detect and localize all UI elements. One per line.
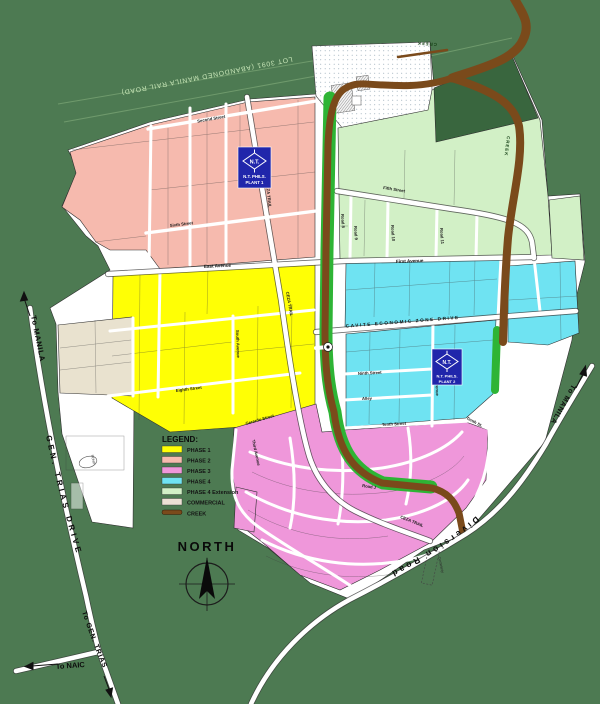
label-alley: Alley [362, 396, 373, 401]
estate-map: LOT 3091 (ABANDONED MANILA RAIL ROAD) [0, 0, 600, 704]
plant-1-name: N.T. PHILS. [243, 174, 266, 179]
plant-2-number: PLANT 2 [439, 379, 456, 384]
region-phase4-east [508, 261, 579, 345]
legend-label-phase4: PHASE 4 [187, 480, 211, 486]
legend-label-commercial: COMMERCIAL [187, 501, 226, 507]
legend-label-phase4ext: PHASE 4 Extension [187, 490, 239, 496]
legend-label-phase3: PHASE 3 [187, 469, 211, 475]
legend-swatch-phase4ext [162, 488, 182, 495]
legend-swatch-phase2 [162, 457, 182, 464]
region-phase1 [112, 261, 315, 432]
legend-swatch-phase1 [162, 446, 182, 453]
legend-label-phase2: PHASE 2 [187, 459, 211, 465]
legend-label-phase1: PHASE 1 [187, 448, 211, 454]
plant-2-name: N.T. PHILS. [436, 374, 457, 379]
map-canvas: LOT 3091 (ABANDONED MANILA RAIL ROAD) [0, 0, 600, 704]
label-road-8: Road 8 [340, 214, 346, 229]
legend-swatch-commercial [162, 499, 182, 506]
region-phase4ext-east [549, 196, 584, 260]
legend-swatch-phase4 [162, 478, 182, 485]
plant-1-logo: N.T. [250, 160, 260, 166]
legend-swatch-creek [162, 510, 182, 515]
legend-title: LEGEND: [162, 435, 198, 444]
label-south-avenue-yellow: South Avenue [235, 330, 241, 359]
compass-label: NORTH [178, 539, 237, 554]
plant-2-logo: N.T. [443, 360, 453, 366]
plant-2-marker: N.T. N.T. PHILS. PLANT 2 [432, 349, 462, 385]
plant-1-marker: N.T. N.T. PHILS. PLANT 1 [238, 147, 271, 188]
label-road-9: Road 9 [353, 226, 359, 241]
legend-label-creek: CREEK [187, 512, 206, 518]
label-first-avenue: First Avenue [396, 258, 424, 264]
plant-1-number: PLANT 1 [246, 180, 265, 185]
legend-swatch-phase3 [162, 467, 182, 474]
